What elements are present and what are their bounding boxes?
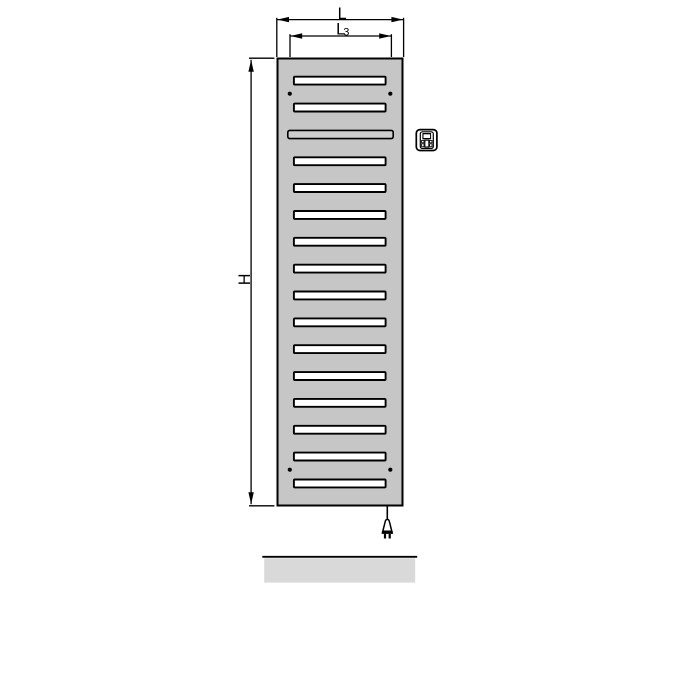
svg-text:3: 3 bbox=[343, 27, 349, 39]
svg-text:H: H bbox=[236, 273, 254, 285]
